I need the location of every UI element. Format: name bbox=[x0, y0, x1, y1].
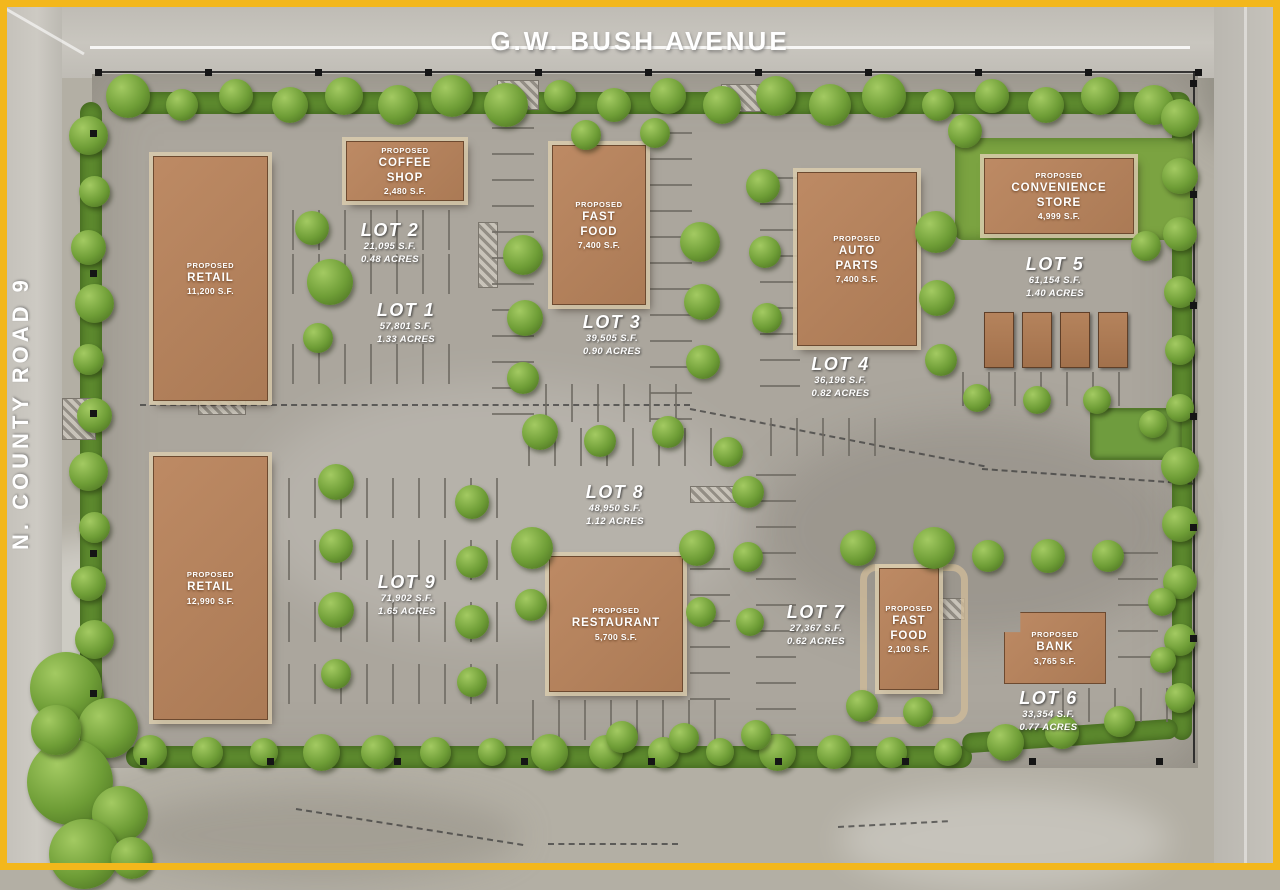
tree-icon bbox=[706, 738, 734, 766]
tree-icon bbox=[166, 89, 198, 121]
exterior-road-dashes bbox=[548, 843, 678, 845]
tree-icon bbox=[733, 542, 763, 572]
property-corner-marker bbox=[1085, 69, 1092, 76]
tree-icon bbox=[478, 738, 506, 766]
lot-label-lot-1: LOT 157,801 S.F.1.33 ACRES bbox=[346, 300, 466, 347]
tree-icon bbox=[1081, 77, 1119, 115]
tree-icon bbox=[1031, 539, 1065, 573]
tree-icon bbox=[361, 735, 395, 769]
tree-icon bbox=[507, 362, 539, 394]
lot-name: LOT 3 bbox=[583, 312, 642, 333]
lot-name: LOT 9 bbox=[378, 572, 437, 593]
tree-icon bbox=[1165, 335, 1195, 365]
building-size: 7,400 S.F. bbox=[578, 240, 620, 250]
tree-icon bbox=[272, 87, 308, 123]
lot-square-feet: 57,801 S.F. bbox=[380, 321, 432, 334]
property-corner-marker bbox=[865, 69, 872, 76]
lot-acres: 0.82 ACRES bbox=[811, 388, 869, 401]
building-size: 7,400 S.F. bbox=[836, 274, 878, 284]
tree-icon bbox=[669, 723, 699, 753]
tree-icon bbox=[652, 416, 684, 448]
lot-square-feet: 71,902 S.F. bbox=[381, 593, 433, 606]
building-size: 12,990 S.F. bbox=[187, 596, 234, 606]
tree-icon bbox=[1165, 683, 1195, 713]
property-corner-marker bbox=[1190, 413, 1197, 420]
tree-icon bbox=[544, 80, 576, 112]
property-corner-marker bbox=[1190, 191, 1197, 198]
tree-icon bbox=[69, 116, 108, 155]
lot-name: LOT 1 bbox=[377, 300, 436, 321]
tree-icon bbox=[934, 738, 962, 766]
building-name: FAST FOOD bbox=[580, 210, 617, 239]
tree-icon bbox=[325, 77, 363, 115]
lot-square-feet: 27,367 S.F. bbox=[790, 623, 842, 636]
property-corner-marker bbox=[1156, 758, 1163, 765]
tree-icon bbox=[732, 476, 764, 508]
property-corner-marker bbox=[975, 69, 982, 76]
tree-icon bbox=[903, 697, 933, 727]
property-corner-marker bbox=[645, 69, 652, 76]
property-corner-marker bbox=[90, 270, 97, 277]
aerial-texture bbox=[840, 790, 1170, 890]
tree-icon bbox=[75, 620, 114, 659]
tree-icon bbox=[111, 837, 153, 879]
property-corner-marker bbox=[1190, 302, 1197, 309]
lot-name: LOT 4 bbox=[811, 354, 870, 375]
lot-label-lot-8: LOT 848,950 S.F.1.12 ACRES bbox=[550, 482, 680, 529]
road-east bbox=[1214, 0, 1280, 870]
tree-icon bbox=[913, 527, 955, 569]
lot-square-feet: 39,505 S.F. bbox=[586, 333, 638, 346]
parking-canopy-island bbox=[1060, 312, 1090, 368]
tree-icon bbox=[713, 437, 743, 467]
tree-icon bbox=[73, 344, 104, 375]
tree-icon bbox=[948, 114, 982, 148]
tree-icon bbox=[752, 303, 782, 333]
exterior-road-dashes bbox=[838, 820, 948, 828]
lot-label-lot-9: LOT 971,902 S.F.1.65 ACRES bbox=[342, 572, 472, 619]
tree-icon bbox=[1163, 217, 1197, 251]
property-corner-marker bbox=[90, 410, 97, 417]
tree-icon bbox=[318, 464, 354, 500]
tree-icon bbox=[133, 735, 167, 769]
parking-canopy-island bbox=[1098, 312, 1128, 368]
tree-icon bbox=[1139, 410, 1167, 438]
tree-icon bbox=[531, 734, 568, 771]
lot-label-lot-3: LOT 339,505 S.F.0.90 ACRES bbox=[552, 312, 672, 359]
lot-acres: 0.77 ACRES bbox=[1019, 722, 1077, 735]
lot-acres: 0.48 ACRES bbox=[361, 254, 419, 267]
building-prefix: PROPOSED bbox=[187, 261, 234, 270]
tree-icon bbox=[817, 735, 851, 769]
building-prefix: PROPOSED bbox=[885, 604, 932, 613]
tree-icon bbox=[49, 819, 119, 889]
property-corner-marker bbox=[1190, 80, 1197, 87]
tree-icon bbox=[79, 512, 110, 543]
lot-acres: 0.90 ACRES bbox=[583, 346, 641, 359]
tree-icon bbox=[680, 222, 720, 262]
property-corner-marker bbox=[425, 69, 432, 76]
building-name: RETAIL bbox=[187, 271, 234, 285]
lot-acres: 0.62 ACRES bbox=[787, 636, 845, 649]
tree-icon bbox=[584, 425, 616, 457]
tree-icon bbox=[321, 659, 351, 689]
tree-icon bbox=[684, 284, 720, 320]
lot-name: LOT 5 bbox=[1026, 254, 1085, 275]
tree-icon bbox=[457, 667, 487, 697]
property-corner-marker bbox=[521, 758, 528, 765]
tree-icon bbox=[925, 344, 957, 376]
building-name: CONVENIENCE STORE bbox=[1011, 181, 1106, 210]
tree-icon bbox=[31, 705, 81, 755]
building-prefix: PROPOSED bbox=[381, 146, 428, 155]
tree-icon bbox=[1028, 87, 1064, 123]
tree-icon bbox=[686, 345, 720, 379]
tree-icon bbox=[507, 300, 543, 336]
building-prefix: PROPOSED bbox=[575, 200, 622, 209]
lot-square-feet: 21,095 S.F. bbox=[364, 241, 416, 254]
property-corner-marker bbox=[394, 758, 401, 765]
parking-stalls bbox=[770, 418, 900, 456]
building-size: 4,999 S.F. bbox=[1038, 211, 1080, 221]
lot-name: LOT 2 bbox=[361, 220, 420, 241]
building-convenience-store: PROPOSEDCONVENIENCE STORE4,999 S.F. bbox=[984, 158, 1134, 234]
tree-icon bbox=[1161, 99, 1199, 137]
lot-label-lot-7: LOT 727,367 S.F.0.62 ACRES bbox=[760, 602, 872, 649]
tree-icon bbox=[75, 284, 114, 323]
building-name: RESTAURANT bbox=[572, 616, 660, 630]
tree-icon bbox=[686, 597, 716, 627]
tree-icon bbox=[1148, 588, 1176, 616]
lot-acres: 1.33 ACRES bbox=[377, 334, 435, 347]
tree-icon bbox=[71, 566, 106, 601]
parking-canopy-island bbox=[1022, 312, 1052, 368]
building-size: 3,765 S.F. bbox=[1034, 656, 1076, 666]
tree-icon bbox=[741, 720, 771, 750]
tree-icon bbox=[679, 530, 715, 566]
building-name: AUTO PARTS bbox=[835, 244, 878, 273]
tree-icon bbox=[106, 74, 150, 118]
lot-acres: 1.40 ACRES bbox=[1026, 288, 1084, 301]
property-corner-marker bbox=[315, 69, 322, 76]
tree-icon bbox=[79, 176, 110, 207]
tree-icon bbox=[919, 280, 955, 316]
walkway-hatch bbox=[690, 486, 738, 503]
tree-icon bbox=[650, 78, 686, 114]
building-name: BANK bbox=[1036, 640, 1073, 654]
property-corner-marker bbox=[267, 758, 274, 765]
property-corner-marker bbox=[1190, 524, 1197, 531]
lot-label-lot-6: LOT 633,354 S.F.0.77 ACRES bbox=[986, 688, 1111, 735]
building-prefix: PROPOSED bbox=[833, 234, 880, 243]
lot-acres: 1.12 ACRES bbox=[586, 516, 644, 529]
tree-icon bbox=[69, 452, 108, 491]
building-size: 5,700 S.F. bbox=[595, 632, 637, 642]
tree-icon bbox=[862, 74, 906, 118]
parking-stalls bbox=[528, 428, 728, 466]
property-corner-marker bbox=[140, 758, 147, 765]
building-fast-food-north: PROPOSEDFAST FOOD7,400 S.F. bbox=[552, 145, 646, 305]
property-corner-marker bbox=[205, 69, 212, 76]
tree-icon bbox=[1023, 386, 1051, 414]
lot-label-lot-4: LOT 436,196 S.F.0.82 ACRES bbox=[778, 354, 903, 401]
tree-icon bbox=[219, 79, 253, 113]
building-fast-food-south: PROPOSEDFAST FOOD2,100 S.F. bbox=[879, 568, 939, 690]
property-corner-marker bbox=[1029, 758, 1036, 765]
tree-icon bbox=[455, 485, 489, 519]
tree-icon bbox=[295, 211, 329, 245]
property-corner-marker bbox=[90, 690, 97, 697]
building-prefix: PROPOSED bbox=[1035, 171, 1082, 180]
building-restaurant: PROPOSEDRESTAURANT5,700 S.F. bbox=[549, 556, 683, 692]
tree-icon bbox=[378, 85, 418, 125]
property-corner-marker bbox=[755, 69, 762, 76]
tree-icon bbox=[515, 589, 547, 621]
tree-icon bbox=[431, 75, 473, 117]
tree-icon bbox=[640, 118, 670, 148]
property-corner-marker bbox=[95, 69, 102, 76]
tree-icon bbox=[1083, 386, 1111, 414]
tree-icon bbox=[1161, 447, 1199, 485]
property-corner-marker bbox=[90, 550, 97, 557]
tree-icon bbox=[846, 690, 878, 722]
property-corner-marker bbox=[535, 69, 542, 76]
building-retail-north: PROPOSEDRETAIL11,200 S.F. bbox=[153, 156, 268, 401]
lot-square-feet: 48,950 S.F. bbox=[589, 503, 641, 516]
tree-icon bbox=[192, 737, 223, 768]
tree-icon bbox=[484, 83, 528, 127]
building-prefix: PROPOSED bbox=[1031, 630, 1078, 639]
lot-square-feet: 61,154 S.F. bbox=[1029, 275, 1081, 288]
building-retail-south: PROPOSEDRETAIL12,990 S.F. bbox=[153, 456, 268, 720]
tree-icon bbox=[319, 529, 353, 563]
lot-label-lot-5: LOT 561,154 S.F.1.40 ACRES bbox=[990, 254, 1120, 301]
tree-icon bbox=[963, 384, 991, 412]
tree-icon bbox=[703, 86, 741, 124]
tree-icon bbox=[915, 211, 957, 253]
tree-icon bbox=[1131, 231, 1161, 261]
property-corner-marker bbox=[648, 758, 655, 765]
building-auto-parts: PROPOSEDAUTO PARTS7,400 S.F. bbox=[797, 172, 917, 346]
building-coffee-shop: PROPOSEDCOFFEE SHOP2,480 S.F. bbox=[346, 141, 464, 201]
tree-icon bbox=[571, 120, 601, 150]
tree-icon bbox=[975, 79, 1009, 113]
lot-acres: 1.65 ACRES bbox=[378, 606, 436, 619]
exterior-road-dashes bbox=[296, 808, 523, 846]
tree-icon bbox=[71, 230, 106, 265]
building-prefix: PROPOSED bbox=[187, 570, 234, 579]
lot-square-feet: 33,354 S.F. bbox=[1022, 709, 1074, 722]
building-size: 2,480 S.F. bbox=[384, 186, 426, 196]
property-corner-marker bbox=[1190, 635, 1197, 642]
property-corner-marker bbox=[902, 758, 909, 765]
tree-icon bbox=[1092, 540, 1124, 572]
tree-icon bbox=[756, 76, 796, 116]
parking-canopy-island bbox=[984, 312, 1014, 368]
tree-icon bbox=[972, 540, 1004, 572]
building-size: 2,100 S.F. bbox=[888, 644, 930, 654]
lot-label-lot-2: LOT 221,095 S.F.0.48 ACRES bbox=[330, 220, 450, 267]
building-prefix: PROPOSED bbox=[592, 606, 639, 615]
lot-name: LOT 7 bbox=[787, 602, 846, 623]
tree-icon bbox=[1150, 647, 1176, 673]
road-label-gw-bush-avenue: G.W. BUSH AVENUE bbox=[0, 26, 1280, 57]
lot-name: LOT 6 bbox=[1019, 688, 1078, 709]
building-name: COFFEE SHOP bbox=[379, 156, 432, 185]
road-label-n-county-road-9: N. COUNTY ROAD 9 bbox=[8, 230, 34, 550]
property-corner-marker bbox=[1195, 69, 1202, 76]
lane-line bbox=[1244, 0, 1247, 870]
tree-icon bbox=[1162, 158, 1198, 194]
lot-name: LOT 8 bbox=[586, 482, 645, 503]
tree-icon bbox=[303, 323, 333, 353]
lot-square-feet: 36,196 S.F. bbox=[814, 375, 866, 388]
tree-icon bbox=[503, 235, 543, 275]
building-size: 11,200 S.F. bbox=[187, 286, 234, 296]
tree-icon bbox=[746, 169, 780, 203]
parking-stalls bbox=[690, 560, 730, 700]
tree-icon bbox=[606, 721, 638, 753]
tree-icon bbox=[597, 88, 631, 122]
tree-icon bbox=[420, 737, 451, 768]
tree-icon bbox=[840, 530, 876, 566]
tree-icon bbox=[809, 84, 851, 126]
building-name: FAST FOOD bbox=[890, 614, 927, 643]
property-corner-marker bbox=[90, 130, 97, 137]
building-name: RETAIL bbox=[187, 580, 234, 594]
tree-icon bbox=[922, 89, 954, 121]
tree-icon bbox=[522, 414, 558, 450]
parking-stalls bbox=[650, 120, 692, 420]
property-corner-marker bbox=[775, 758, 782, 765]
tree-icon bbox=[749, 236, 781, 268]
tree-icon bbox=[303, 734, 340, 771]
tree-icon bbox=[511, 527, 553, 569]
